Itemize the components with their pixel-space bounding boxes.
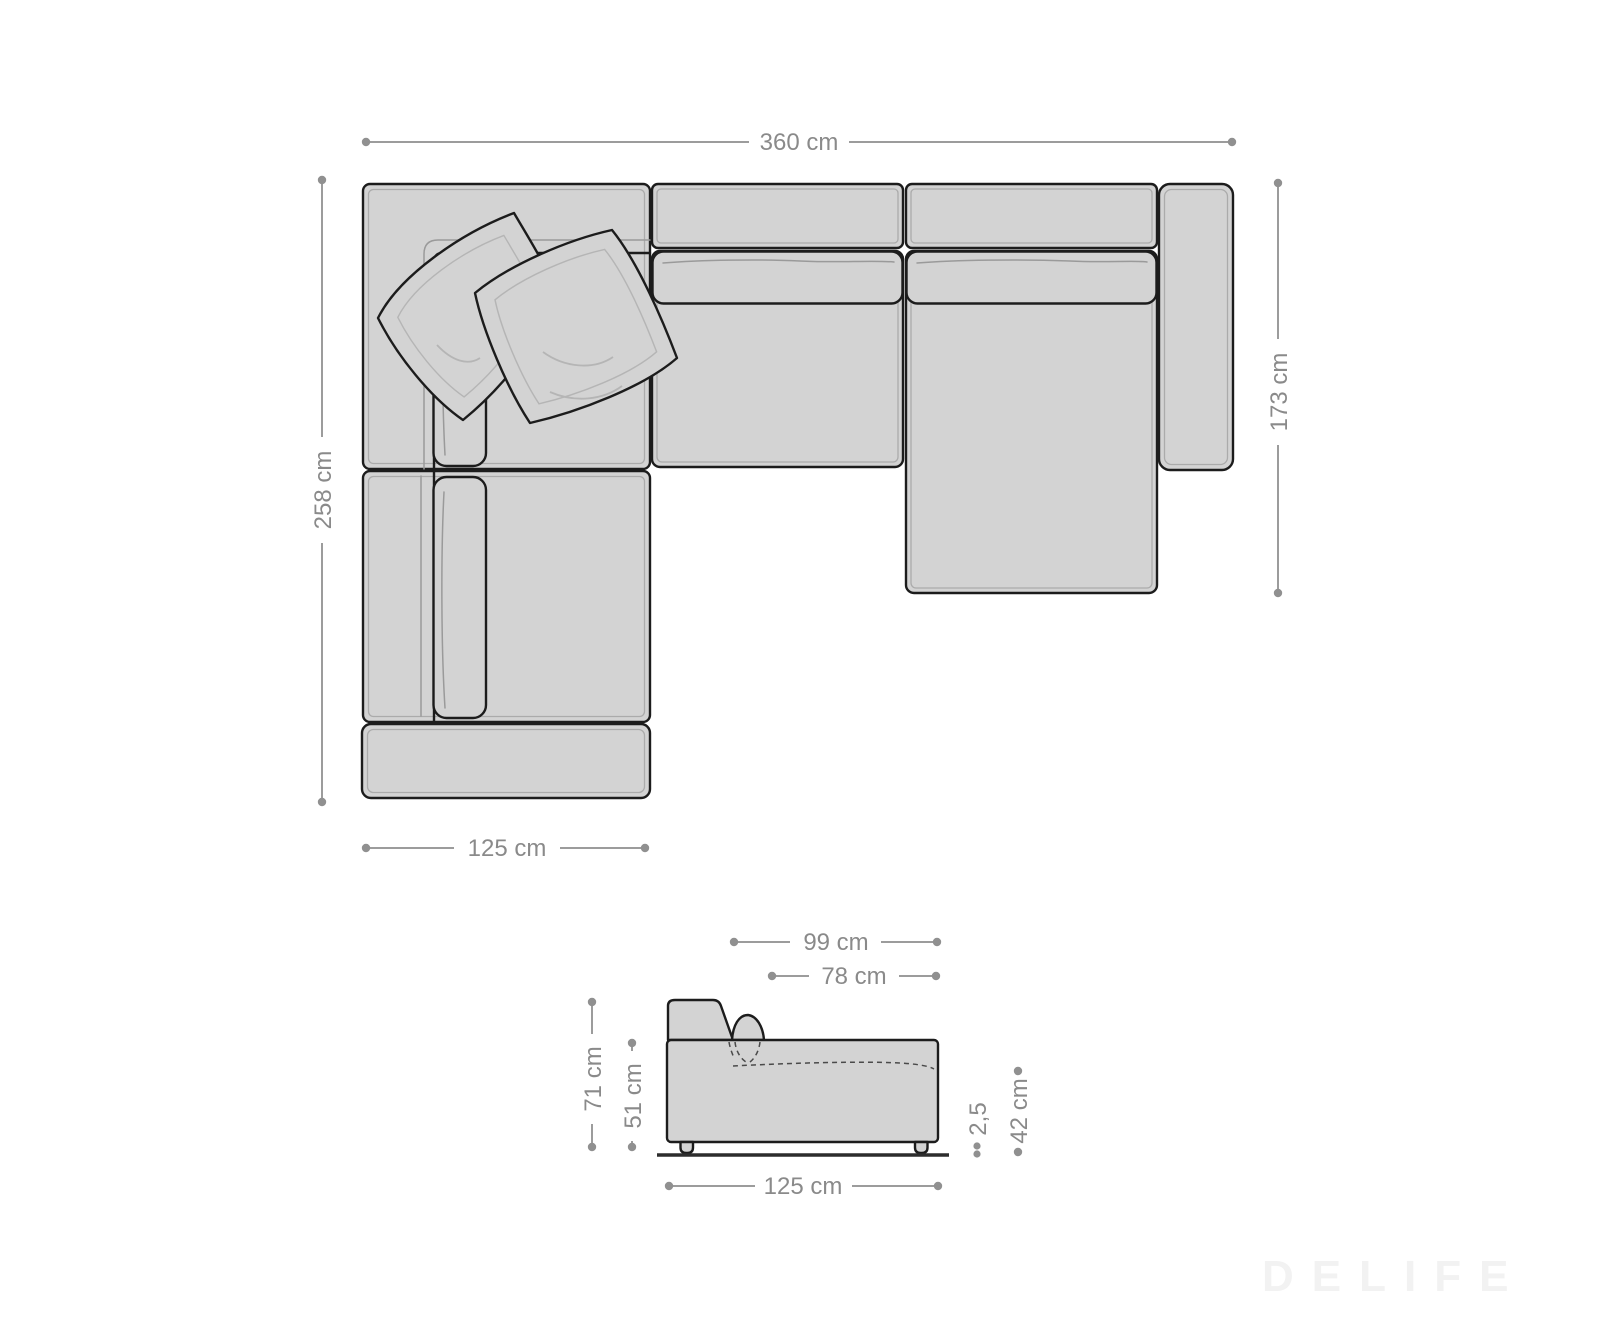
brand-watermark: DELIFE [1262,1252,1592,1302]
side-leg-right [915,1142,928,1153]
side-leg-left [681,1142,694,1153]
ground-clearance-label: 2,5 [965,1102,992,1135]
seat-height-label: 42 cm [1006,1078,1033,1143]
dimension-diagram: 360 cm 258 cm 173 cm 125 cm [0,0,1600,1333]
chaise-depth-label: 173 cm [1266,353,1293,432]
chaise-module [906,184,1157,593]
middle-back-cushion [653,252,903,304]
front-armrest-band [362,724,650,798]
sofa-top-view: 360 cm 258 cm 173 cm 125 cm [310,129,1293,862]
dim-back-height: 71 cm [580,998,607,1151]
dim-seat-depth: 78 cm [768,963,940,990]
dim-corner-width: 125 cm [362,835,649,862]
dim-side-width: 125 cm [665,1173,942,1200]
corner-width-label: 125 cm [468,835,547,862]
side-backrest [668,1000,733,1040]
side-body [667,1040,938,1142]
seat-depth-label: 78 cm [821,963,886,990]
middle-seat-module [652,184,903,467]
sofa-side-view: 99 cm 78 cm 71 cm 51 cm 2,5 [580,929,1033,1200]
side-head-cushion [732,1015,764,1040]
dim-seat-height: 42 cm [1006,1067,1033,1156]
overall-depth-label: 99 cm [803,929,868,956]
dim-overall-depth: 99 cm [730,929,941,956]
total-width-label: 360 cm [760,129,839,156]
dim-total-depth: 258 cm [310,176,337,806]
total-depth-label: 258 cm [310,451,337,530]
dim-chaise-depth: 173 cm [1266,179,1293,597]
sofa-dimension-drawing: 360 cm 258 cm 173 cm 125 cm [0,0,1600,1333]
left-seat-module [363,471,650,722]
body-height-label: 51 cm [620,1063,647,1128]
side-width-label: 125 cm [764,1173,843,1200]
right-armrest [1159,184,1233,470]
dim-total-width: 360 cm [362,129,1236,156]
dim-body-height: 51 cm [620,1039,647,1151]
dim-ground-clearance: 2,5 [965,1102,992,1157]
back-height-label: 71 cm [580,1046,607,1111]
